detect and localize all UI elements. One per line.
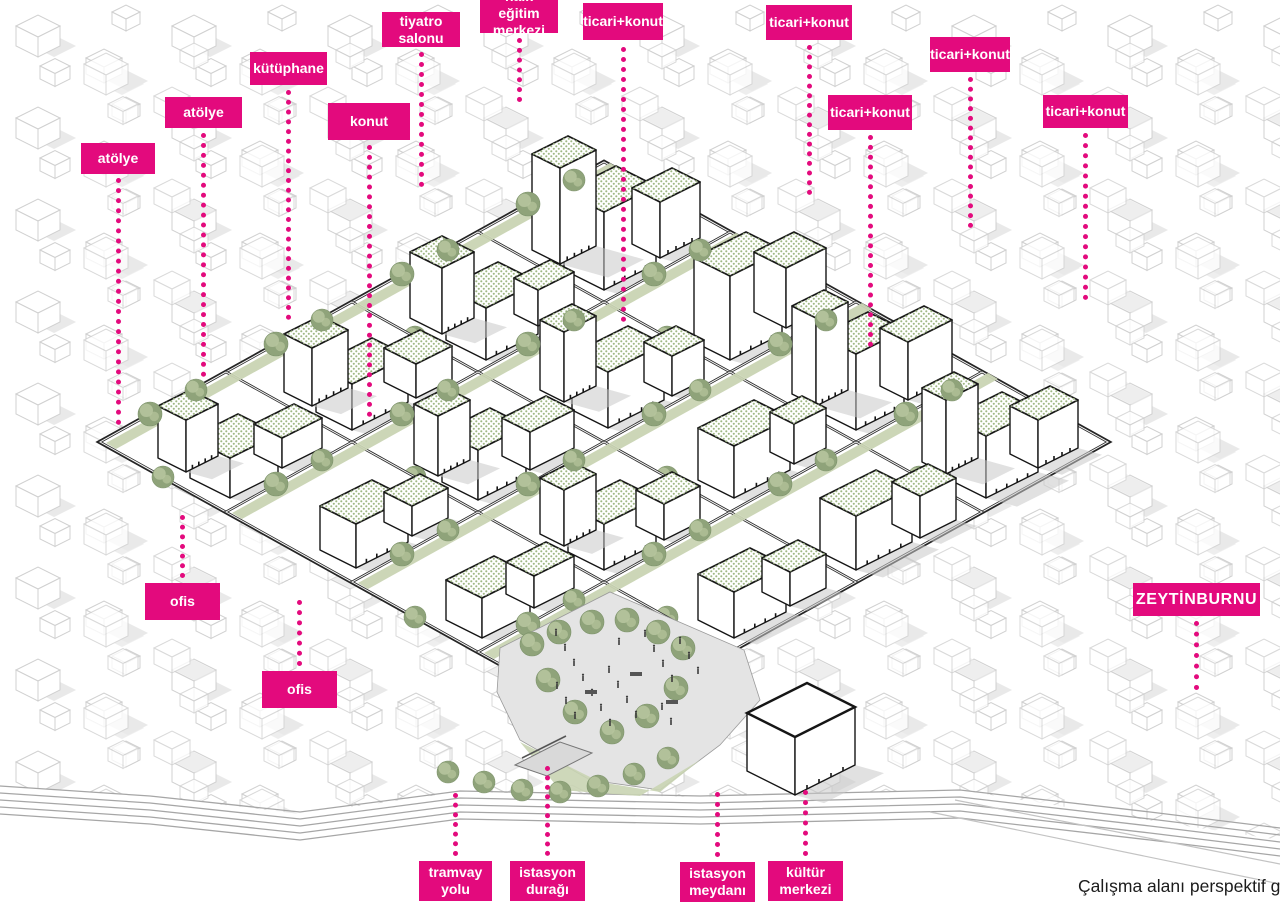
label-text: atölye [98,150,138,167]
leader-ofis-1 [180,515,185,578]
leader-atolye-1 [116,178,121,425]
leader-halk-egitim-merkezi [517,38,522,102]
label-text: atölye [183,104,223,121]
label-text: ofis [287,681,312,698]
leader-istasyon-meydani [715,792,720,857]
label-text: tiyatro salonu [398,13,443,47]
label-atolye-2: atölye [165,97,242,128]
leader-ticari-konut-3 [968,77,973,228]
perspective-drawing: atölyeatölyekütüphanekonuttiyatro salonu… [0,0,1280,905]
leader-ticari-konut-2 [807,45,812,195]
caption: Çalışma alanı perspektif görünü [1078,876,1280,897]
label-text: tramvay yolu [429,864,483,898]
label-ofis-1: ofis [145,583,220,620]
leader-kultur-merkezi [803,790,808,856]
city-illustration [0,0,1280,905]
label-konut: konut [328,103,410,140]
label-text: istasyon durağı [519,864,576,898]
leader-istasyon-duragi [545,766,550,856]
label-tramvay-yolu: tramvay yolu [419,861,492,901]
label-istasyon-duragi: istasyon durağı [510,861,585,901]
label-tiyatro-salonu: tiyatro salonu [382,12,460,47]
label-text: ticari+konut [583,13,663,30]
leader-atolye-2 [201,133,206,377]
label-ticari-konut-1: ticari+konut [583,3,663,40]
label-text: istasyon meydanı [689,865,746,899]
leader-konut [367,145,372,417]
label-ofis-2: ofis [262,671,337,708]
label-text: ticari+konut [930,46,1010,63]
label-ticari-konut-3: ticari+konut [930,37,1010,72]
label-halk-egitim-merkezi: halk eğitim merkezi [480,0,558,33]
leader-ticari-konut-4 [868,135,873,347]
label-text: ticari+konut [1046,103,1126,120]
label-atolye-1: atölye [81,143,155,174]
leader-ofis-2 [297,600,302,666]
label-text: ofis [170,593,195,610]
label-text: ticari+konut [769,14,849,31]
leader-kutuphane [286,90,291,320]
leader-tiyatro-salonu [419,52,424,187]
label-ticari-konut-2: ticari+konut [766,5,852,40]
label-text: kültür merkezi [779,864,831,898]
label-zeytinburnu: ZEYTİNBURNU [1133,583,1260,616]
label-text: konut [350,113,388,130]
label-text: ticari+konut [830,104,910,121]
label-text: ZEYTİNBURNU [1136,591,1257,608]
leader-tramvay-yolu [453,793,458,856]
leader-ticari-konut-1 [621,47,626,322]
label-text: halk eğitim merkezi [484,0,554,39]
label-istasyon-meydani: istasyon meydanı [680,862,755,902]
label-kultur-merkezi: kültür merkezi [768,861,843,901]
label-ticari-konut-4: ticari+konut [828,95,912,130]
leader-ticari-konut-5 [1083,133,1088,300]
leader-zeytinburnu [1194,621,1199,690]
label-text: kütüphane [253,60,324,77]
label-kutuphane: kütüphane [250,52,327,85]
label-ticari-konut-5: ticari+konut [1043,95,1128,128]
